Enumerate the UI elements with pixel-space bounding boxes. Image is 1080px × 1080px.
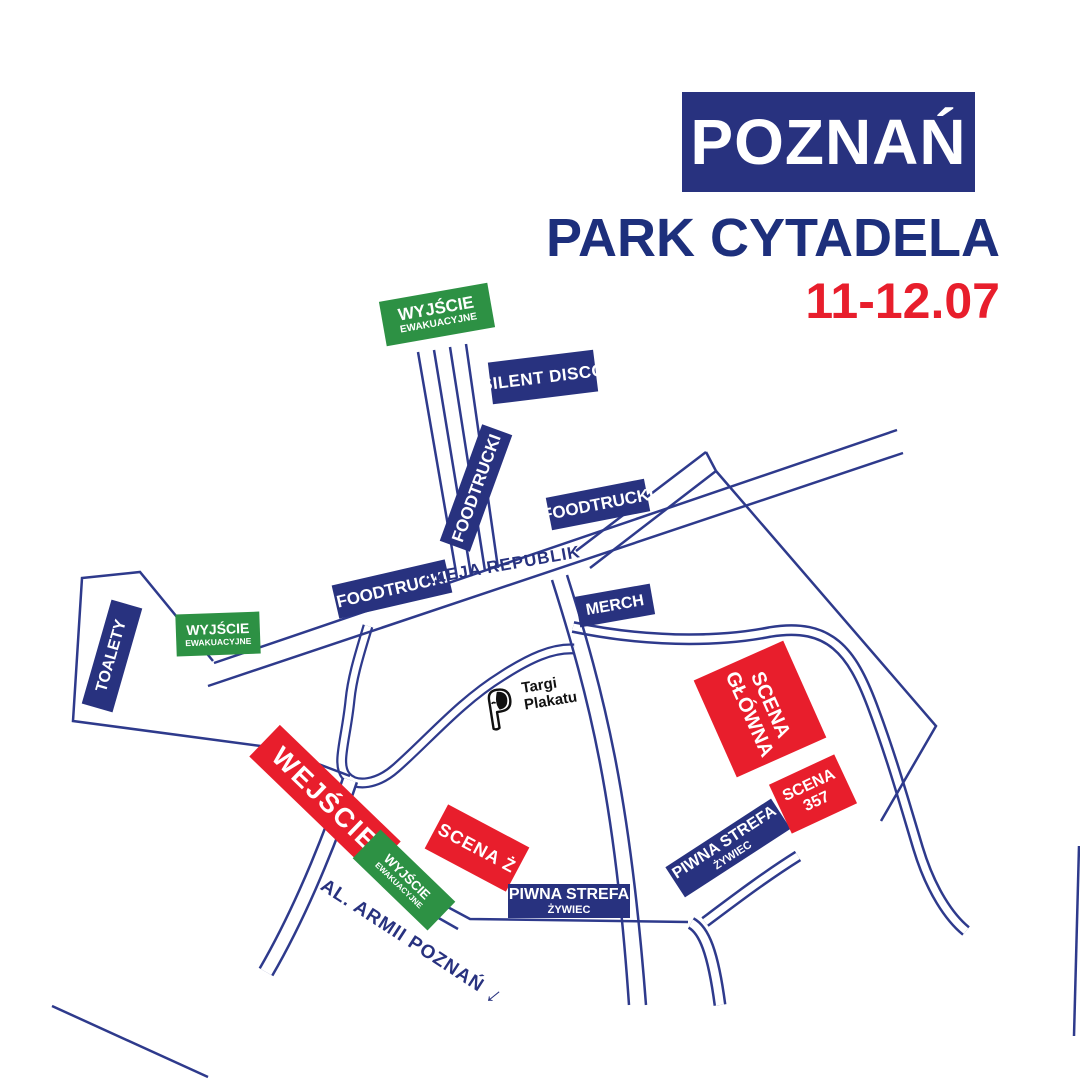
header-city: POZNAŃ — [690, 105, 966, 179]
poster-p-logo-icon — [477, 682, 522, 733]
silent-disco-text: SILENT DISCO — [480, 361, 606, 393]
festival-map-poster: POZNAŃ PARK CYTADELA 11-12.07 WYJŚCIE EW… — [0, 0, 1080, 1080]
targi-plakatu-text: Targi Plakatu — [520, 673, 580, 727]
piwna-strefa-label-south: PIWNA STREFA ŻYWIEC — [508, 884, 630, 918]
emergency-exit-sign-west: WYJŚCIE EWAKUACYJNE — [175, 612, 260, 657]
header-dates: 11-12.07 — [580, 272, 1000, 330]
exit-line2: EWAKUACYJNE — [185, 637, 251, 648]
piwna-line1: PIWNA STREFA — [509, 887, 629, 903]
merch-text: MERCH — [585, 593, 646, 619]
scena-glowna-text: SCENA GŁÓWNA — [722, 659, 798, 760]
exit-line1: WYJŚCIE — [186, 621, 249, 637]
header-city-box: POZNAŃ — [682, 92, 975, 192]
piwna-line2: ŻYWIEC — [548, 905, 591, 916]
header-venue: PARK CYTADELA — [380, 207, 1000, 269]
